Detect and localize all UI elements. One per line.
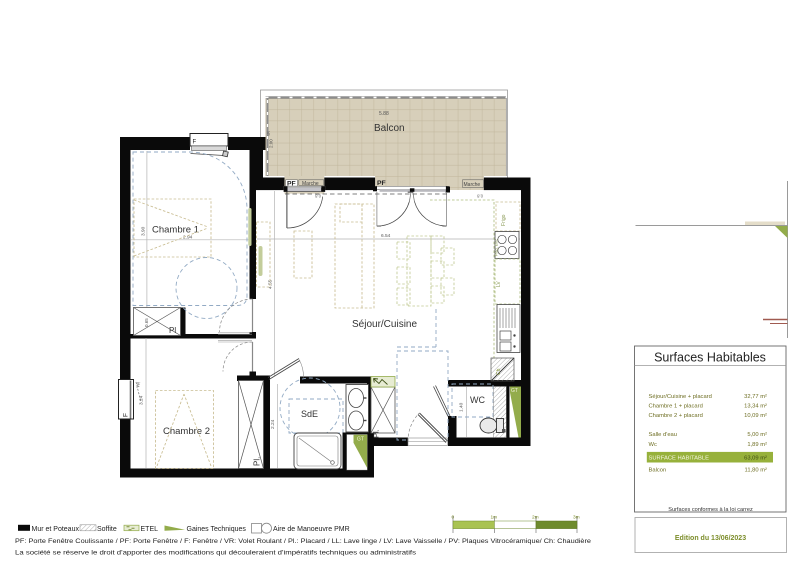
svg-text:Pl.: Pl. (253, 457, 262, 466)
svg-text:32,77 m²: 32,77 m² (744, 394, 767, 400)
svg-text:1,89 m²: 1,89 m² (747, 442, 767, 448)
svg-text:0.65: 0.65 (144, 318, 149, 327)
svg-text:Ch: Ch (496, 368, 502, 375)
svg-text:Séjour/Cuisine: Séjour/Cuisine (352, 319, 417, 330)
svg-text:Plaq. Elec: Plaq. Elec (495, 239, 499, 256)
svg-text:Salle d'eau: Salle d'eau (649, 432, 678, 438)
svg-text:4.55: 4.55 (268, 279, 274, 289)
svg-text:11,80 m²: 11,80 m² (745, 468, 768, 474)
svg-text:Pl.: Pl. (372, 429, 381, 438)
svg-text:VR: VR (267, 131, 271, 136)
svg-text:0: 0 (452, 515, 455, 521)
svg-text:0.8: 0.8 (315, 194, 321, 199)
svg-text:1.40: 1.40 (459, 402, 465, 412)
svg-text:63,09 m²: 63,09 m² (744, 456, 767, 462)
svg-text:3.24: 3.24 (139, 395, 145, 405)
svg-text:Soffite: Soffite (97, 526, 117, 533)
svg-text:Gaines Techniques: Gaines Techniques (187, 526, 247, 533)
svg-text:Aire de Manoeuvre PMR: Aire de Manoeuvre PMR (273, 526, 350, 533)
svg-text:LV: LV (496, 281, 502, 287)
svg-text:Balcon: Balcon (374, 123, 405, 134)
svg-text:0.8: 0.8 (477, 194, 483, 199)
svg-text:2m: 2m (532, 515, 539, 521)
svg-text:Chambre 2 + placard: Chambre 2 + placard (649, 413, 703, 419)
svg-text:Surfaces Habitables: Surfaces Habitables (654, 351, 766, 365)
svg-text:Frigo: Frigo (501, 214, 507, 226)
svg-text:Mur et Poteaux: Mur et Poteaux (32, 526, 80, 533)
svg-text:Edition du 13/06/2023: Edition du 13/06/2023 (675, 535, 746, 542)
svg-text:Balcon: Balcon (649, 468, 667, 474)
svg-text:1m: 1m (491, 515, 498, 521)
svg-text:6.54: 6.54 (381, 233, 391, 239)
svg-text:PF: PF (287, 181, 296, 188)
svg-text:2.00: 2.00 (269, 139, 274, 148)
svg-text:Surfaces conformes à la loi ca: Surfaces conformes à la loi carrez (668, 507, 753, 513)
svg-text:SdE: SdE (301, 409, 318, 419)
svg-text:PF: Porte Fenêtre Coulissante: PF: Porte Fenêtre Coulissante / PF: Port… (15, 538, 591, 545)
svg-text:2.24: 2.24 (270, 419, 276, 429)
svg-text:3.90: 3.90 (141, 226, 147, 236)
svg-text:Chambre 1 + placard: Chambre 1 + placard (649, 404, 703, 410)
svg-text:F: F (193, 140, 197, 146)
svg-text:F: F (123, 413, 130, 417)
svg-text:ETEL: ETEL (141, 526, 159, 533)
svg-text:Wc: Wc (649, 442, 657, 448)
svg-text:SURFACE HABITABLE: SURFACE HABITABLE (649, 456, 710, 462)
svg-text:Pl: Pl (169, 326, 176, 335)
svg-text:Marche: Marche (302, 181, 319, 187)
svg-text:WC: WC (470, 395, 485, 405)
svg-text:13,34 m²: 13,34 m² (744, 404, 767, 410)
svg-text:10,09 m²: 10,09 m² (744, 413, 767, 419)
svg-text:GT: GT (511, 388, 518, 394)
svg-text:La société se réserve le droit: La société se réserve le droit d'apporte… (15, 550, 417, 557)
svg-text:Séjour/Cuisine + placard: Séjour/Cuisine + placard (649, 394, 712, 400)
svg-text:PF: PF (377, 180, 386, 187)
svg-text:5,00 m²: 5,00 m² (747, 432, 767, 438)
svg-text:5.88: 5.88 (379, 111, 389, 117)
svg-text:GT: GT (357, 437, 364, 443)
svg-text:Marche: Marche (464, 182, 481, 188)
svg-text:3m: 3m (573, 515, 580, 521)
svg-text:VR: VR (135, 381, 141, 388)
